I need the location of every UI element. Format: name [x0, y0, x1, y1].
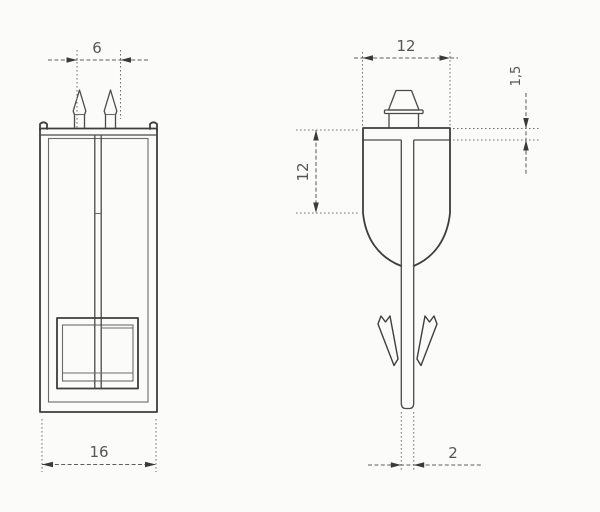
dim-arrow-left: [42, 462, 53, 468]
dim-arrow-left: [363, 55, 374, 61]
extension-line: [401, 412, 413, 470]
dim-label-12-top: 12: [396, 37, 415, 55]
side-head-cap: [385, 91, 424, 128]
front-pin-left: [73, 90, 86, 128]
dim-label-1-5: 1,5: [509, 66, 524, 87]
front-view: 6 16: [40, 39, 157, 472]
dim-label-12-side: 12: [294, 162, 312, 181]
dim-arrow-right: [440, 55, 451, 61]
extension-line: [363, 52, 451, 126]
dim-label-6: 6: [92, 39, 102, 57]
dim-arrow-bottom: [523, 140, 529, 151]
drawing-sheet: 6 16: [0, 0, 600, 512]
side-top-plate: [363, 128, 450, 140]
front-dim-pin-span: 6: [48, 39, 150, 128]
dim-arrow-right: [121, 57, 132, 63]
dim-arrow-left: [391, 462, 402, 468]
extension-line: [453, 129, 540, 141]
dim-arrow-right: [414, 462, 425, 468]
dim-label-16: 16: [89, 443, 108, 461]
front-center-stem: [95, 135, 101, 318]
side-dim-upper-body-length: 12: [294, 130, 360, 213]
dim-arrow-right: [145, 462, 156, 468]
front-pin-right: [104, 90, 117, 128]
side-stem: [401, 140, 413, 409]
side-barb-right: [417, 316, 437, 366]
dim-label-2: 2: [448, 444, 458, 462]
dim-arrow-left: [67, 57, 78, 63]
side-barb-left: [378, 316, 398, 366]
side-funnel-body: [363, 140, 450, 266]
front-dim-overall-width: 16: [42, 419, 156, 472]
dim-arrow-bottom: [313, 203, 319, 214]
side-dim-plate-thickness: 1,5: [453, 66, 540, 175]
side-dim-head-width: 12: [354, 37, 458, 126]
front-anchor-block: [57, 318, 138, 389]
extension-line: [77, 50, 121, 128]
clip-technical-drawing: 6 16: [0, 0, 600, 512]
side-view: 12 1,5 12 2: [294, 37, 540, 470]
dim-arrow-top: [523, 118, 529, 129]
side-dim-stem-thickness: 2: [368, 412, 482, 470]
dim-arrow-top: [313, 130, 319, 141]
